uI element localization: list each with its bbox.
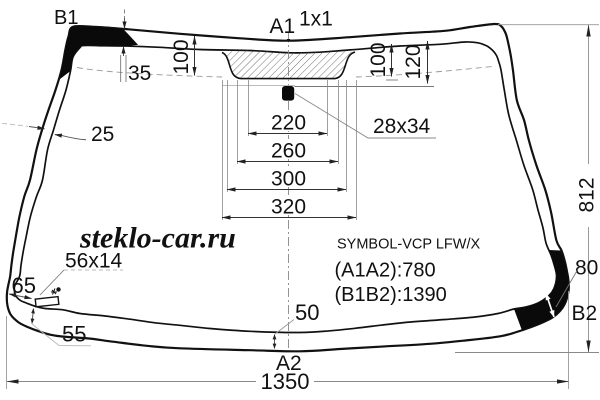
- svg-text:B1: B1: [54, 7, 78, 29]
- svg-text:320: 320: [271, 196, 306, 219]
- svg-text:100: 100: [367, 42, 390, 77]
- svg-text:(B1B2):1390: (B1B2):1390: [335, 284, 447, 306]
- svg-text:220: 220: [271, 112, 306, 135]
- svg-text:1x1: 1x1: [299, 8, 333, 31]
- svg-text:812: 812: [576, 177, 599, 212]
- svg-text:(A1A2):780: (A1A2):780: [335, 260, 436, 282]
- svg-text:120: 120: [402, 44, 425, 79]
- svg-text:260: 260: [271, 140, 306, 163]
- svg-text:80: 80: [575, 257, 598, 280]
- svg-text:28x34: 28x34: [373, 115, 431, 138]
- svg-text:SYMBOL-VCP LFW/X: SYMBOL-VCP LFW/X: [337, 237, 480, 253]
- svg-text:56x14: 56x14: [65, 250, 123, 273]
- svg-text:300: 300: [271, 168, 306, 191]
- svg-text:50: 50: [295, 300, 319, 325]
- svg-text:A1: A1: [270, 15, 296, 38]
- svg-text:B2: B2: [572, 302, 598, 325]
- svg-text:55: 55: [62, 322, 86, 347]
- svg-text:25: 25: [91, 123, 114, 146]
- svg-text:65: 65: [12, 273, 36, 298]
- svg-text:100: 100: [170, 39, 193, 74]
- svg-text:1350: 1350: [261, 369, 310, 394]
- svg-text:35: 35: [128, 62, 151, 85]
